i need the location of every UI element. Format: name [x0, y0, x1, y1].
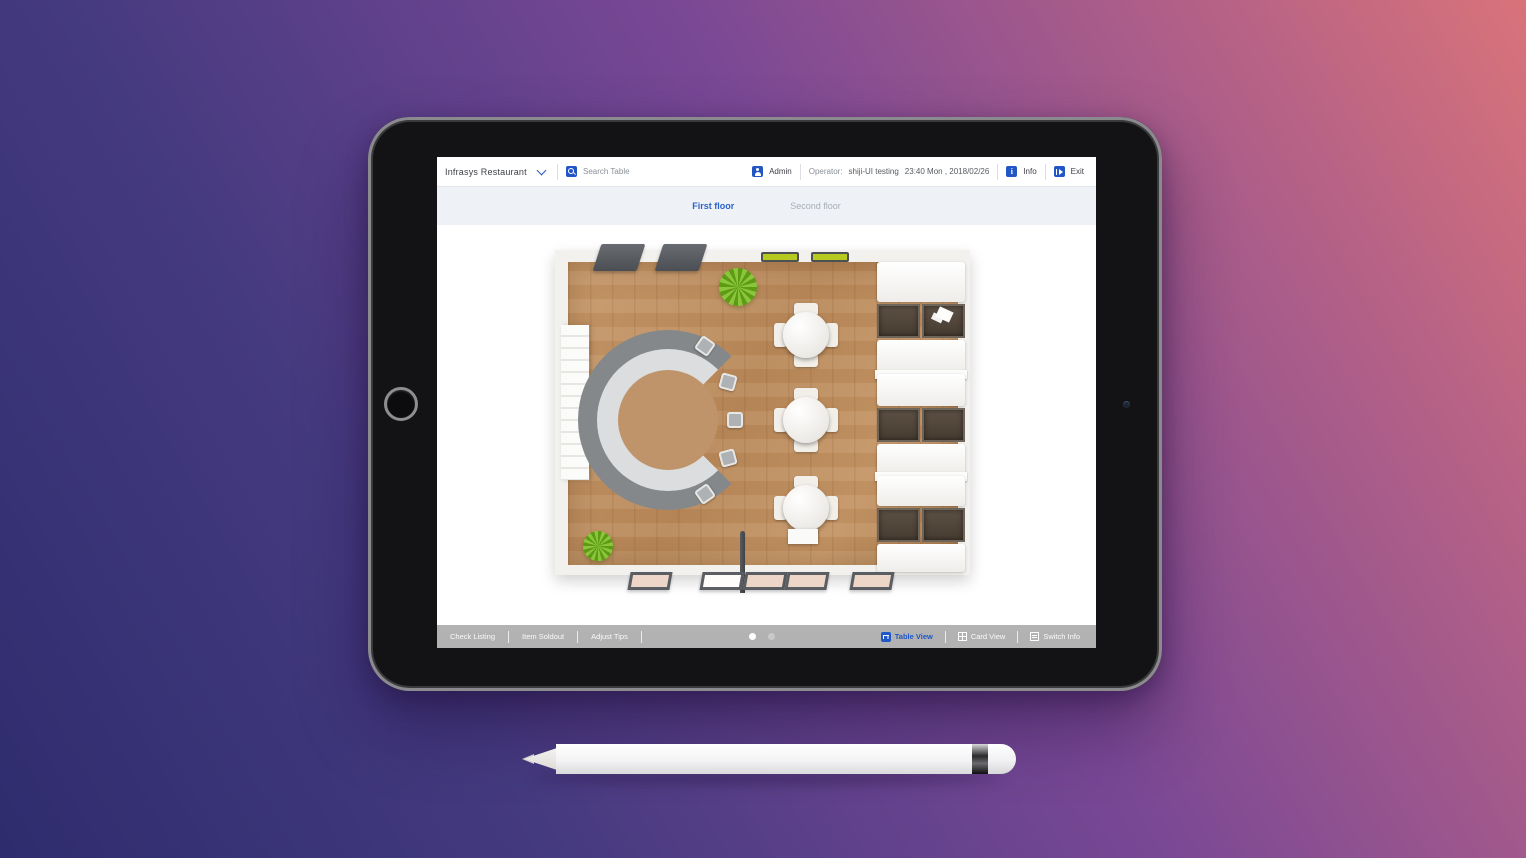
operator-name: shiji-UI testing	[849, 167, 899, 176]
divider	[557, 164, 558, 180]
app-screen: Infrasys Restaurant Search Table Admin O…	[437, 157, 1096, 648]
top-bar: Infrasys Restaurant Search Table Admin O…	[437, 157, 1096, 187]
datetime: 23:40 Mon , 2018/02/26	[905, 167, 990, 176]
top-bar-right: Admin Operator: shiji-UI testing 23:40 M…	[752, 164, 1088, 180]
booth-sofa	[877, 476, 965, 506]
round-table[interactable]	[774, 388, 838, 452]
exit-label[interactable]: Exit	[1071, 167, 1084, 176]
patio-table[interactable]	[742, 572, 787, 590]
booth-column	[877, 262, 965, 572]
entry-mat	[655, 244, 708, 271]
booth-sofa	[877, 444, 965, 474]
divider	[800, 164, 801, 180]
page-dots	[749, 633, 775, 640]
floor-plan[interactable]	[555, 250, 970, 595]
booth-sofa	[877, 544, 965, 572]
booth-table[interactable]	[877, 508, 965, 542]
patio-table[interactable]	[699, 572, 744, 590]
table-view-label: Table View	[895, 632, 933, 641]
operator-label: Operator:	[809, 167, 843, 176]
switch-info-label: Switch Info	[1043, 632, 1080, 641]
window-mat	[761, 252, 799, 262]
booth-table[interactable]	[877, 408, 965, 442]
round-table[interactable]	[774, 303, 838, 367]
info-icon[interactable]	[1006, 166, 1017, 177]
service-station	[788, 529, 818, 544]
adjust-tips-button[interactable]: Adjust Tips	[578, 625, 641, 648]
admin-icon	[752, 166, 763, 177]
card-view-button[interactable]: Card View	[946, 632, 1017, 641]
floor-tab-bar: First floor Second floor	[437, 187, 1096, 225]
item-soldout-button[interactable]: Item Soldout	[509, 625, 577, 648]
booth-table-left	[877, 508, 920, 542]
window-mat	[811, 252, 849, 262]
plant	[583, 531, 613, 561]
table-view-icon	[881, 632, 891, 642]
plant	[719, 268, 757, 306]
search-icon[interactable]	[566, 166, 577, 177]
booth-sofa	[877, 340, 965, 372]
info-label[interactable]: Info	[1023, 167, 1036, 176]
card-view-icon	[958, 632, 967, 641]
restaurant-selector[interactable]: Infrasys Restaurant	[445, 167, 549, 177]
check-listing-button[interactable]: Check Listing	[437, 625, 508, 648]
switch-info-button[interactable]: Switch Info	[1018, 632, 1092, 641]
chevron-down-icon	[537, 165, 547, 175]
stylus-pencil	[520, 744, 1016, 774]
switch-info-icon	[1030, 632, 1039, 641]
table-view-button[interactable]: Table View	[869, 632, 945, 642]
booth-sofa	[877, 374, 965, 406]
patio-table[interactable]	[627, 572, 672, 590]
booth-table-left	[877, 304, 920, 338]
camera-icon	[1123, 401, 1130, 408]
tab-first-floor[interactable]: First floor	[692, 201, 734, 211]
bar-stool[interactable]	[727, 412, 743, 428]
table-top	[783, 485, 829, 531]
booth-table-left	[877, 408, 920, 442]
table-top	[783, 312, 829, 358]
main-content	[437, 225, 1096, 625]
divider	[1045, 164, 1046, 180]
toolbar-right: Table View Card View Switch Info	[869, 631, 1096, 643]
exit-icon[interactable]	[1054, 166, 1065, 177]
card-view-label: Card View	[971, 632, 1005, 641]
restaurant-name: Infrasys Restaurant	[445, 167, 527, 177]
bottom-toolbar: Check Listing Item Soldout Adjust Tips T…	[437, 625, 1096, 648]
divider	[641, 631, 642, 643]
booth-table-right	[922, 508, 965, 542]
patio-table[interactable]	[784, 572, 829, 590]
admin-label[interactable]: Admin	[769, 167, 792, 176]
tab-second-floor[interactable]: Second floor	[790, 201, 841, 211]
booth-table[interactable]	[877, 304, 965, 338]
tablet-device: Infrasys Restaurant Search Table Admin O…	[368, 117, 1162, 691]
pencil-tip	[524, 747, 560, 771]
page-dot[interactable]	[768, 633, 775, 640]
divider	[997, 164, 998, 180]
page-dot-active[interactable]	[749, 633, 756, 640]
bar-inner-floor	[618, 370, 718, 470]
booth-sofa	[877, 262, 965, 302]
home-button[interactable]	[384, 387, 418, 421]
booth-table-right	[922, 408, 965, 442]
entry-mat	[593, 244, 646, 271]
pencil-cap	[988, 744, 1016, 774]
search-input[interactable]: Search Table	[583, 167, 630, 176]
table-top	[783, 397, 829, 443]
patio-table[interactable]	[849, 572, 894, 590]
pencil-body	[556, 744, 974, 774]
